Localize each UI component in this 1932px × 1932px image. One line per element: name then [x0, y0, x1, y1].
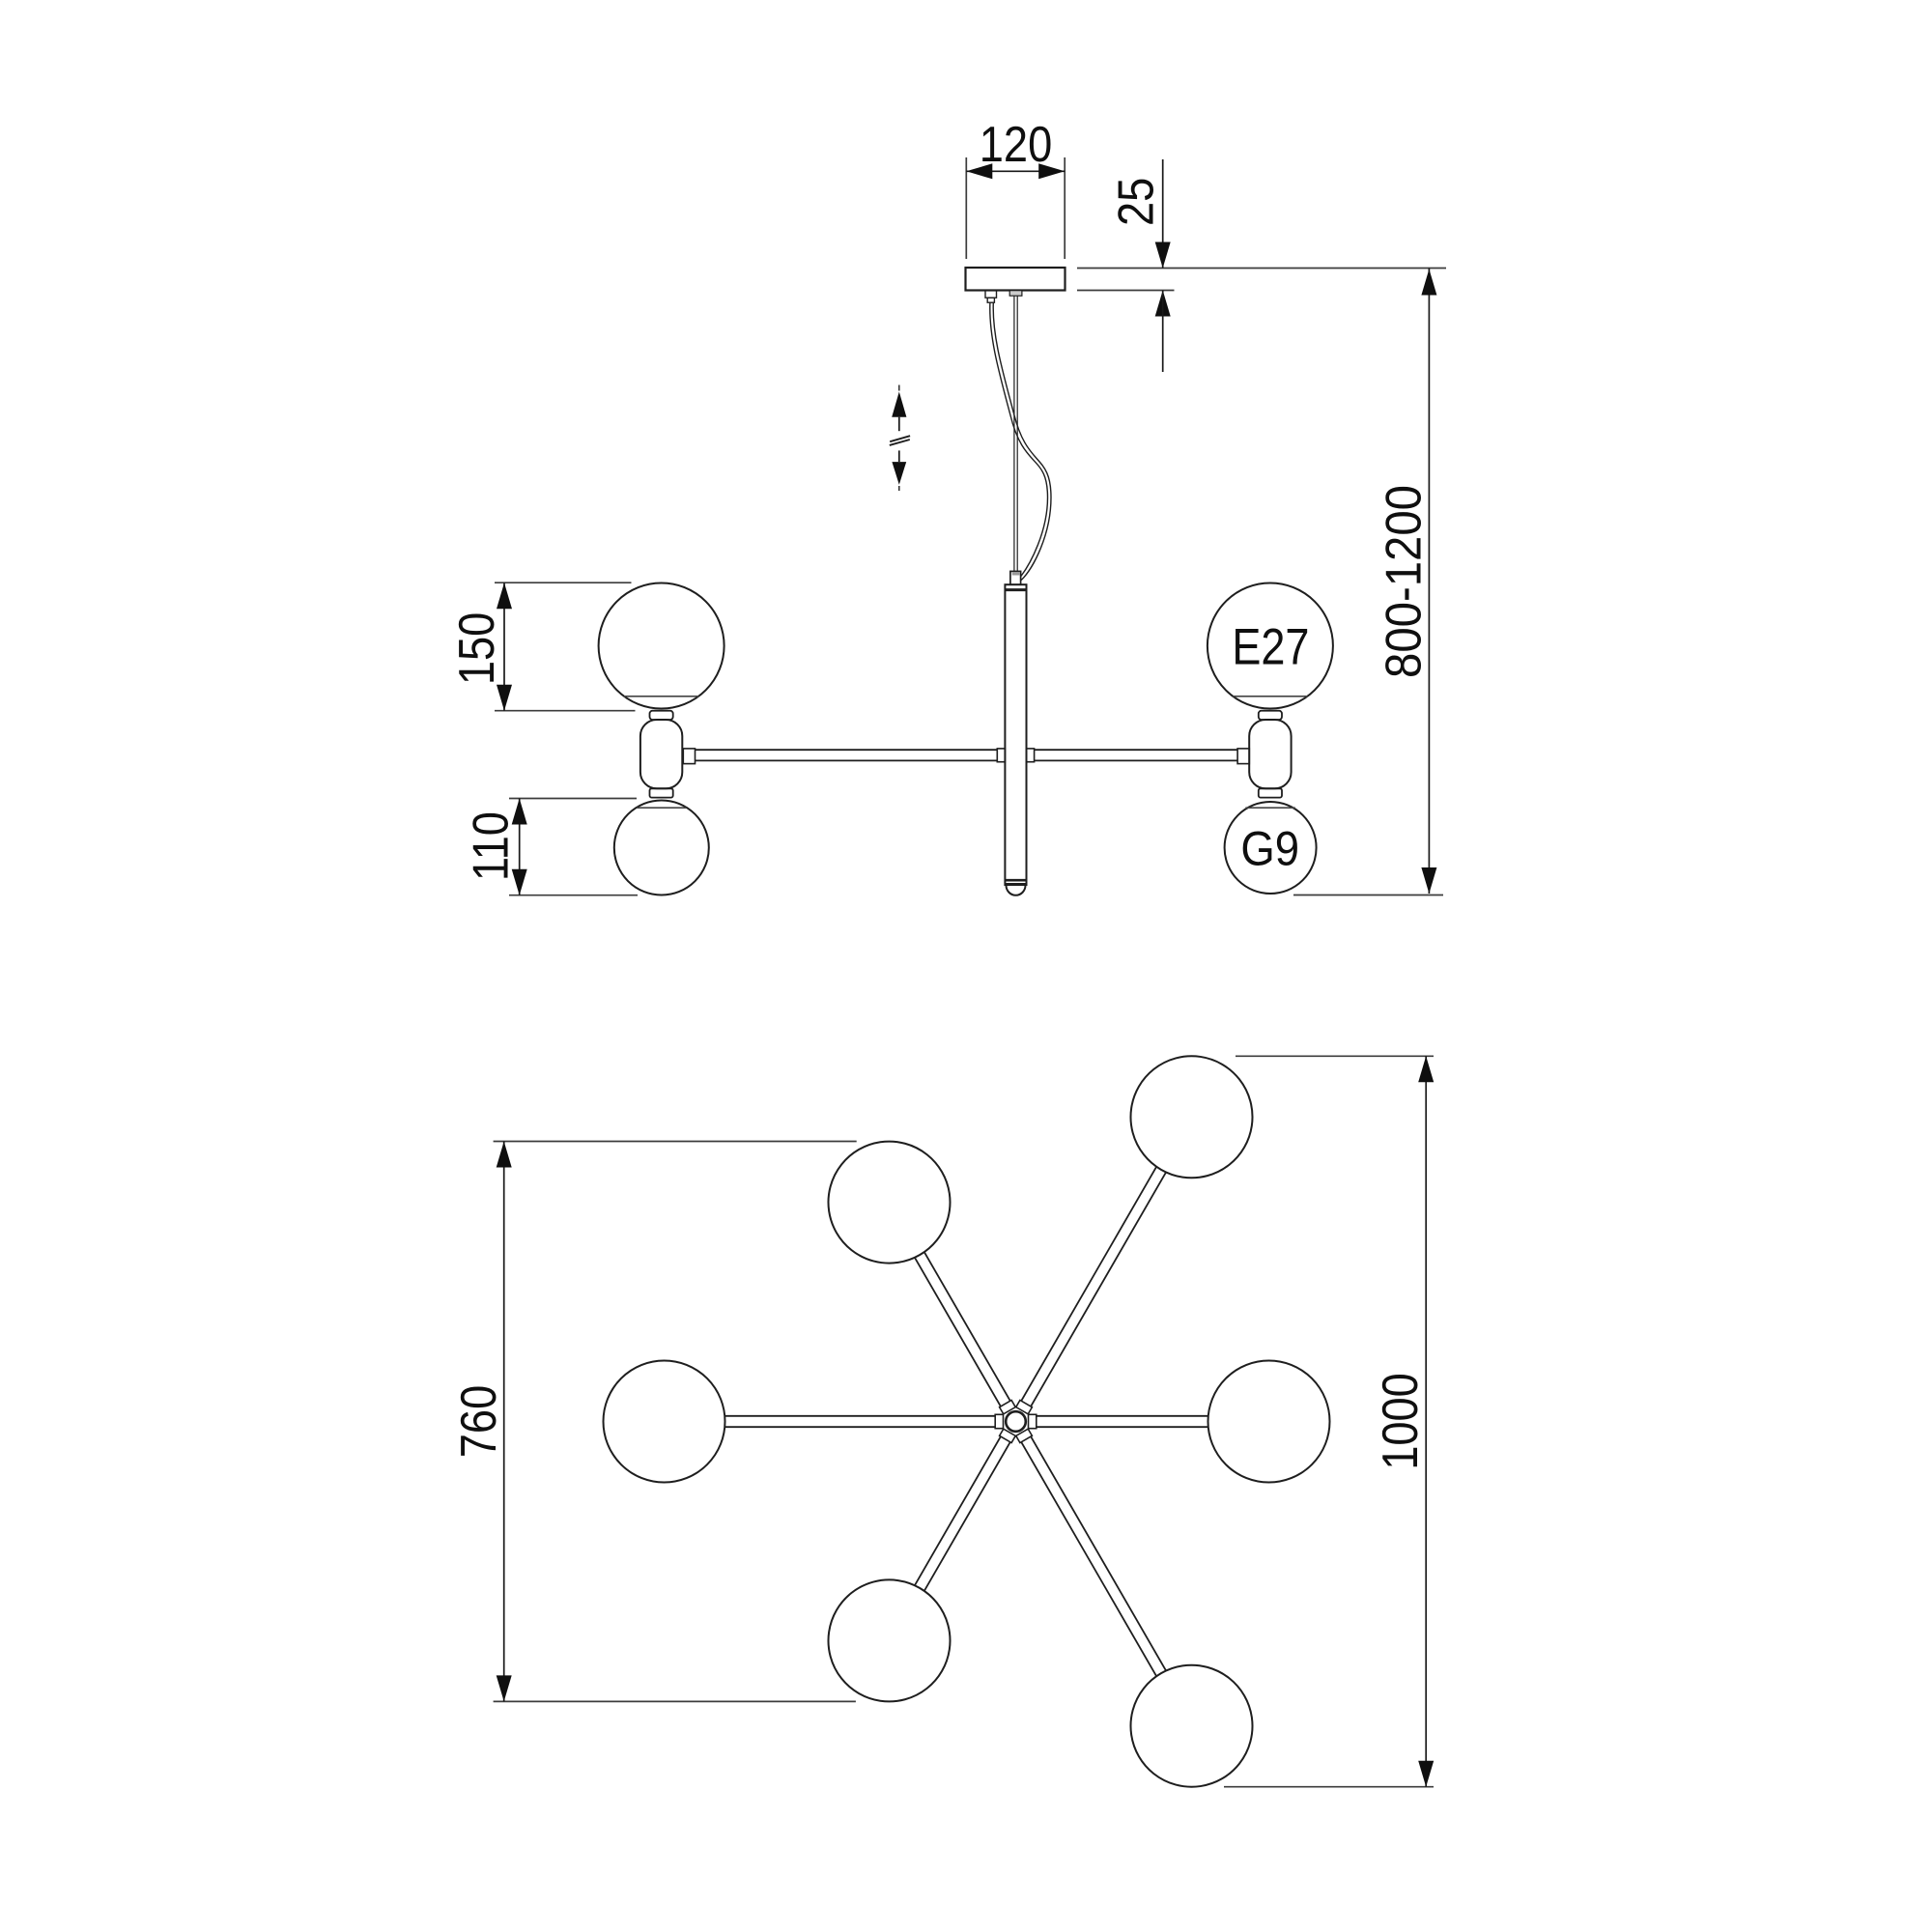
- svg-text:1000: 1000: [1373, 1373, 1429, 1470]
- svg-text:E27: E27: [1232, 618, 1309, 675]
- svg-text:760: 760: [451, 1385, 507, 1458]
- svg-text:G9: G9: [1240, 823, 1299, 876]
- svg-text:800-1200: 800-1200: [1376, 485, 1433, 678]
- svg-text:120: 120: [980, 117, 1052, 173]
- svg-text:150: 150: [449, 612, 505, 685]
- svg-text:110: 110: [464, 811, 520, 881]
- svg-text:25: 25: [1109, 178, 1165, 226]
